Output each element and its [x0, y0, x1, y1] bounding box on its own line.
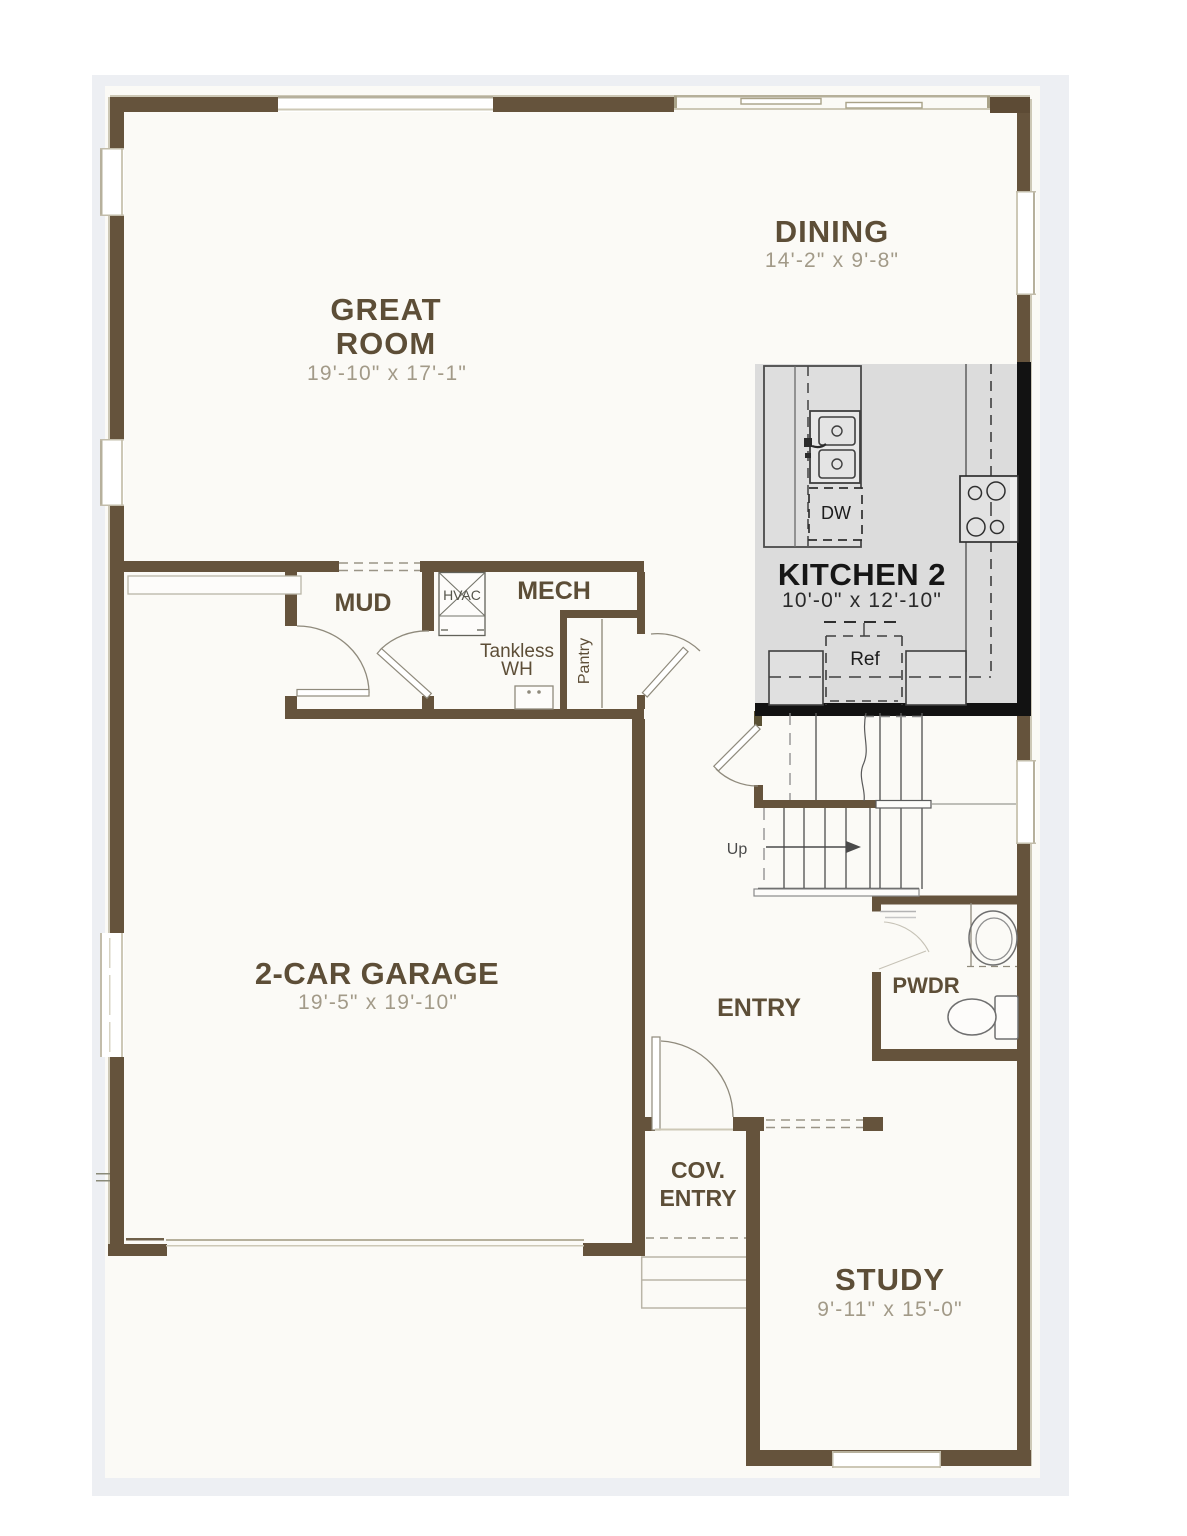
- svg-text:COV.: COV.: [671, 1157, 725, 1183]
- svg-text:ENTRY: ENTRY: [717, 994, 801, 1022]
- svg-text:DW: DW: [821, 503, 851, 523]
- svg-text:PWDR: PWDR: [892, 973, 959, 998]
- svg-text:Up: Up: [727, 841, 748, 858]
- svg-text:WH: WH: [501, 659, 533, 680]
- svg-text:MUD: MUD: [335, 589, 392, 617]
- svg-text:19'-5" x 19'-10": 19'-5" x 19'-10": [298, 991, 458, 1014]
- svg-text:ENTRY: ENTRY: [659, 1185, 736, 1211]
- svg-text:STUDY: STUDY: [835, 1262, 945, 1297]
- svg-text:2-CAR GARAGE: 2-CAR GARAGE: [255, 956, 499, 991]
- svg-text:GREAT: GREAT: [330, 292, 441, 327]
- svg-text:9'-11" x 15'-0": 9'-11" x 15'-0": [817, 1298, 963, 1321]
- svg-text:MECH: MECH: [517, 577, 591, 605]
- svg-text:Pantry: Pantry: [576, 638, 593, 684]
- svg-text:14'-2" x 9'-8": 14'-2" x 9'-8": [765, 249, 899, 272]
- svg-text:KITCHEN 2: KITCHEN 2: [778, 557, 946, 592]
- svg-text:HVAC: HVAC: [443, 587, 481, 603]
- svg-text:10'-0" x 12'-10": 10'-0" x 12'-10": [782, 589, 942, 612]
- svg-text:19'-10" x 17'-1": 19'-10" x 17'-1": [307, 362, 467, 385]
- svg-text:DINING: DINING: [775, 214, 890, 249]
- svg-text:Ref: Ref: [850, 649, 880, 670]
- svg-text:ROOM: ROOM: [336, 326, 436, 361]
